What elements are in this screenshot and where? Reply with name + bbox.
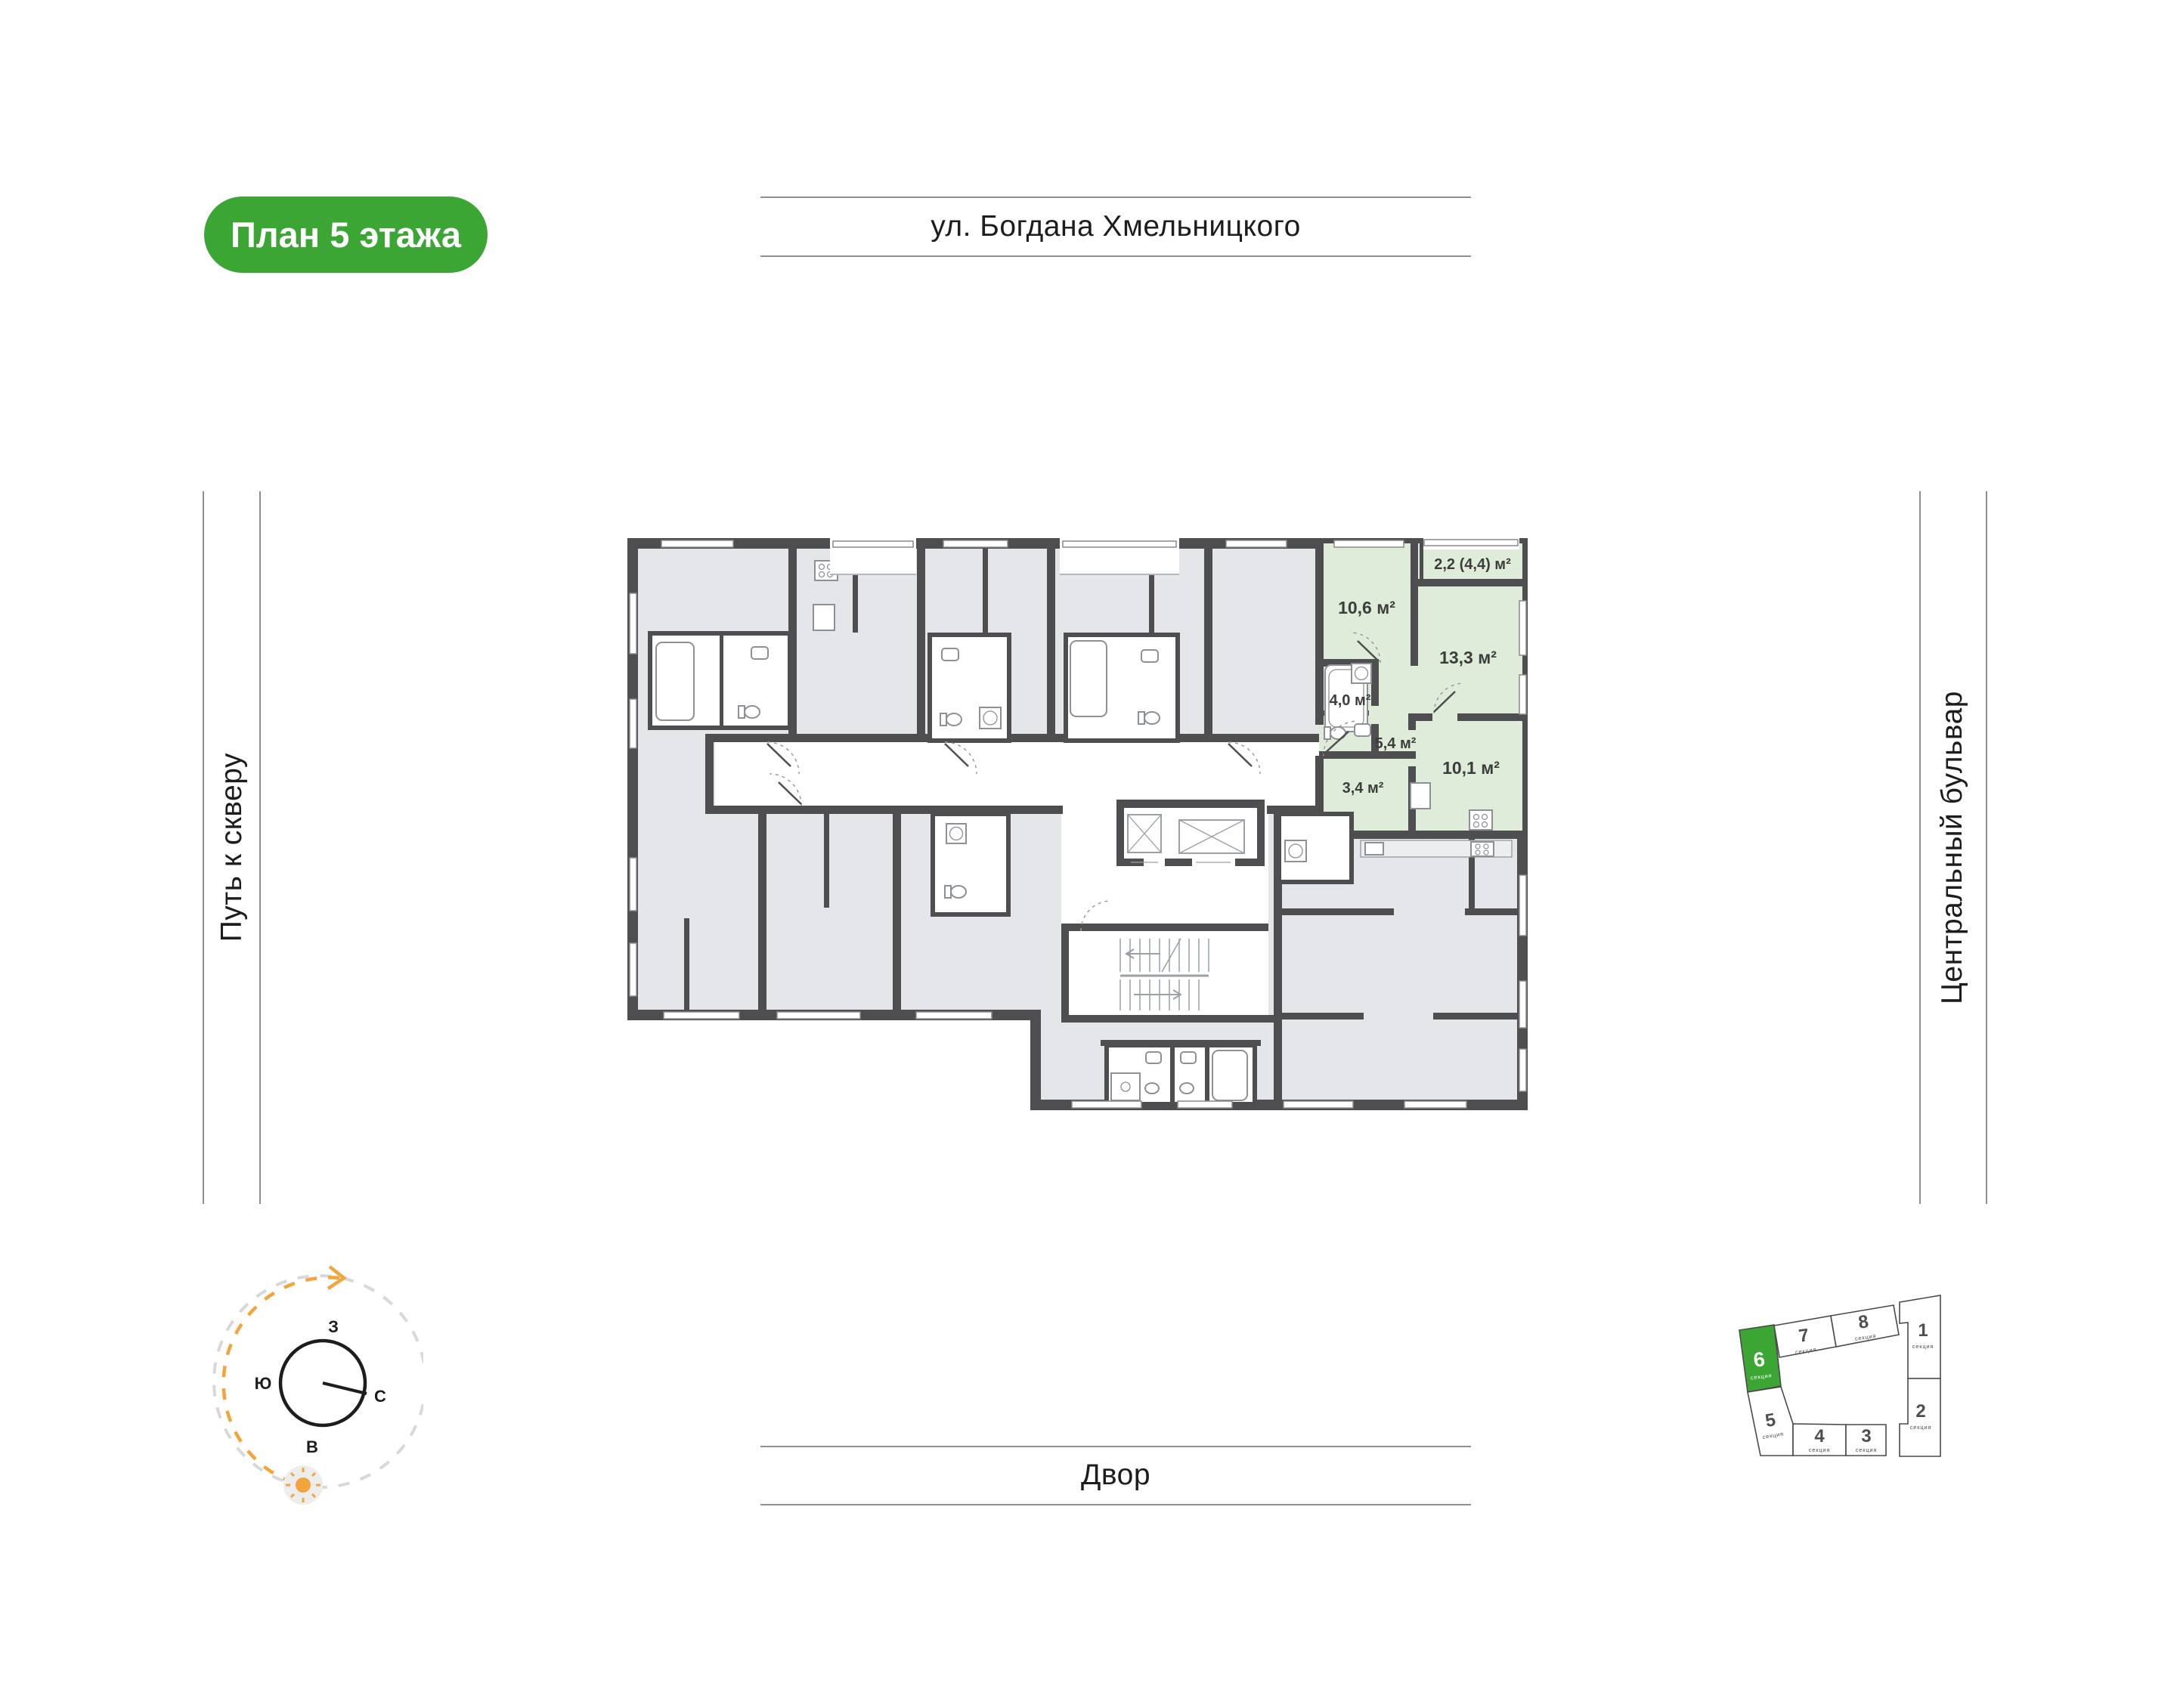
minimap-section-2-cap: секция [1910,1424,1932,1431]
balcony-railing [1424,540,1518,546]
compass: З Ю С В [189,1239,423,1519]
room-label-bedroom: 10,6 м² [1338,598,1395,617]
minimap-section-3-cap: секция [1856,1447,1878,1453]
room-label-hallway: 5,4 м² [1375,735,1417,752]
page: { "badge": { "label": "План 5 этажа", "b… [0,0,2177,1708]
street-right-label: Центральный бульвар [1936,691,1969,1004]
minimap-section-1-cap: секция [1912,1343,1934,1350]
minimap-section-4-cap: секция [1809,1447,1831,1453]
compass-north: С [374,1387,386,1406]
street-right: Центральный бульвар [1921,491,1984,1204]
street-left-line-2 [259,491,261,1204]
room-label-balcony: 2,2 (4,4) м² [1434,556,1511,573]
corridor [715,742,1320,806]
apartment-highlighted[interactable]: 2,2 (4,4) м² 10,6 м² 13,3 м² 4,0 м² 5,4 … [1315,537,1522,839]
street-top: ул. Богдана Хмельницкого [760,198,1471,255]
street-bottom-label: Двор [1081,1459,1150,1492]
room-label-bathroom: 4,0 м² [1330,692,1371,709]
street-left-label: Путь к скверу [215,753,249,942]
street-top-label: ул. Богдана Хмельницкого [931,210,1301,243]
minimap-section-4-num: 4 [1814,1426,1825,1447]
floor-badge-label: План 5 этажа [231,214,461,255]
street-left: Путь к скверу [204,491,259,1204]
room-label-living: 13,3 м² [1439,648,1497,667]
floor-badge: План 5 этажа [204,196,488,273]
minimap-section-2-num: 2 [1915,1401,1925,1422]
section-minimap: 6 секция 7 секция 8 секция 1 секция 2 се… [1723,1270,1980,1474]
street-right-line-2 [1986,491,1987,1204]
street-bottom-line-2 [760,1504,1471,1505]
compass-south: Ю [255,1374,272,1393]
minimap-section-1-num: 1 [1918,1320,1928,1341]
room-label-kitchen: 10,1 м² [1442,758,1500,778]
compass-west: З [328,1317,339,1336]
compass-east: В [306,1437,318,1456]
street-bottom: Двор [760,1447,1471,1502]
room-label-room: 3,4 м² [1342,780,1384,797]
minimap-section-3-num: 3 [1861,1426,1871,1447]
floor-plan: 2,2 (4,4) м² 10,6 м² 13,3 м² 4,0 м² 5,4 … [620,529,1534,1122]
street-top-line-2 [760,255,1471,257]
